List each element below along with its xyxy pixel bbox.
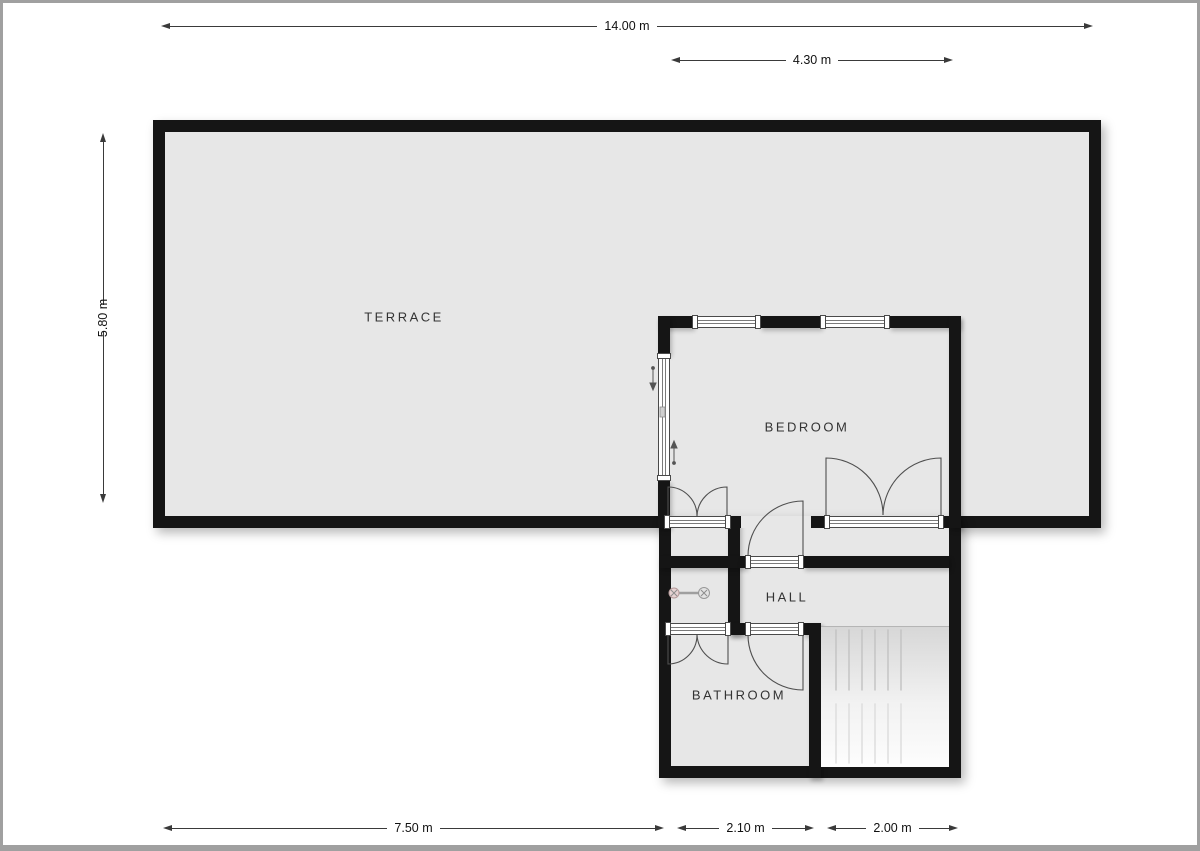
dimension-bottom-middle: 2.10 m [677,821,814,835]
door-sill-hall [746,556,803,568]
arrow-left-icon [671,57,680,63]
door-sill-bathroom [746,623,803,635]
wall-bathroom-right [809,623,821,778]
arrow-down-icon [100,494,106,503]
wall-bathroom-top-1 [730,623,746,635]
dimension-label: 2.00 m [866,821,918,835]
dimension-label: 5.80 m [90,299,116,337]
window-bedroom-top-left [693,316,760,328]
wall-bedroom-right [949,316,961,528]
room-label-bedroom: BEDROOM [765,420,850,435]
stairs-icon [821,626,949,767]
floor-plan-canvas: 14.00 m 4.30 m 5.80 m 7.50 m 2.10 m 2.00… [0,0,1200,851]
arrow-left-icon [827,825,836,831]
dimension-top-partial: 4.30 m [671,53,953,67]
wall-bedroom-top-2 [760,316,821,328]
room-label-hall: HALL [766,590,809,605]
arrow-left-icon [163,825,172,831]
dimension-label: 2.10 m [719,821,771,835]
room-label-terrace: TERRACE [364,310,444,325]
arrow-right-icon [805,825,814,831]
wall-hall-south-of-closet [803,556,949,568]
dimension-label: 7.50 m [387,821,439,835]
arrow-right-icon [1084,23,1093,29]
arrow-up-icon [100,133,106,142]
arrow-right-icon [949,825,958,831]
opening-bedroom-to-hall [741,516,811,528]
dimension-label: 14.00 m [597,19,656,33]
dimension-left-height: 5.80 m [96,133,110,503]
door-sill-bathroom-closet [666,623,730,635]
wall-closet-horizontal [659,556,740,568]
door-sill-bedroom-closet-left [665,516,730,528]
room-label-bathroom: BATHROOM [692,688,786,703]
dimension-label: 4.30 m [786,53,838,67]
door-sill-bedroom-closet-right [825,516,943,528]
arrow-left-icon [677,825,686,831]
sliding-door-terrace-bedroom [658,354,670,480]
wall-bedroom-left-upper [658,316,670,354]
arrow-left-icon [161,23,170,29]
wall-closet-vertical [728,516,740,635]
arrow-right-icon [944,57,953,63]
window-bedroom-top-right [821,316,889,328]
dimension-bottom-left: 7.50 m [163,821,664,835]
arrow-right-icon [655,825,664,831]
dimension-bottom-right: 2.00 m [827,821,958,835]
dimension-top-total: 14.00 m [161,19,1093,33]
